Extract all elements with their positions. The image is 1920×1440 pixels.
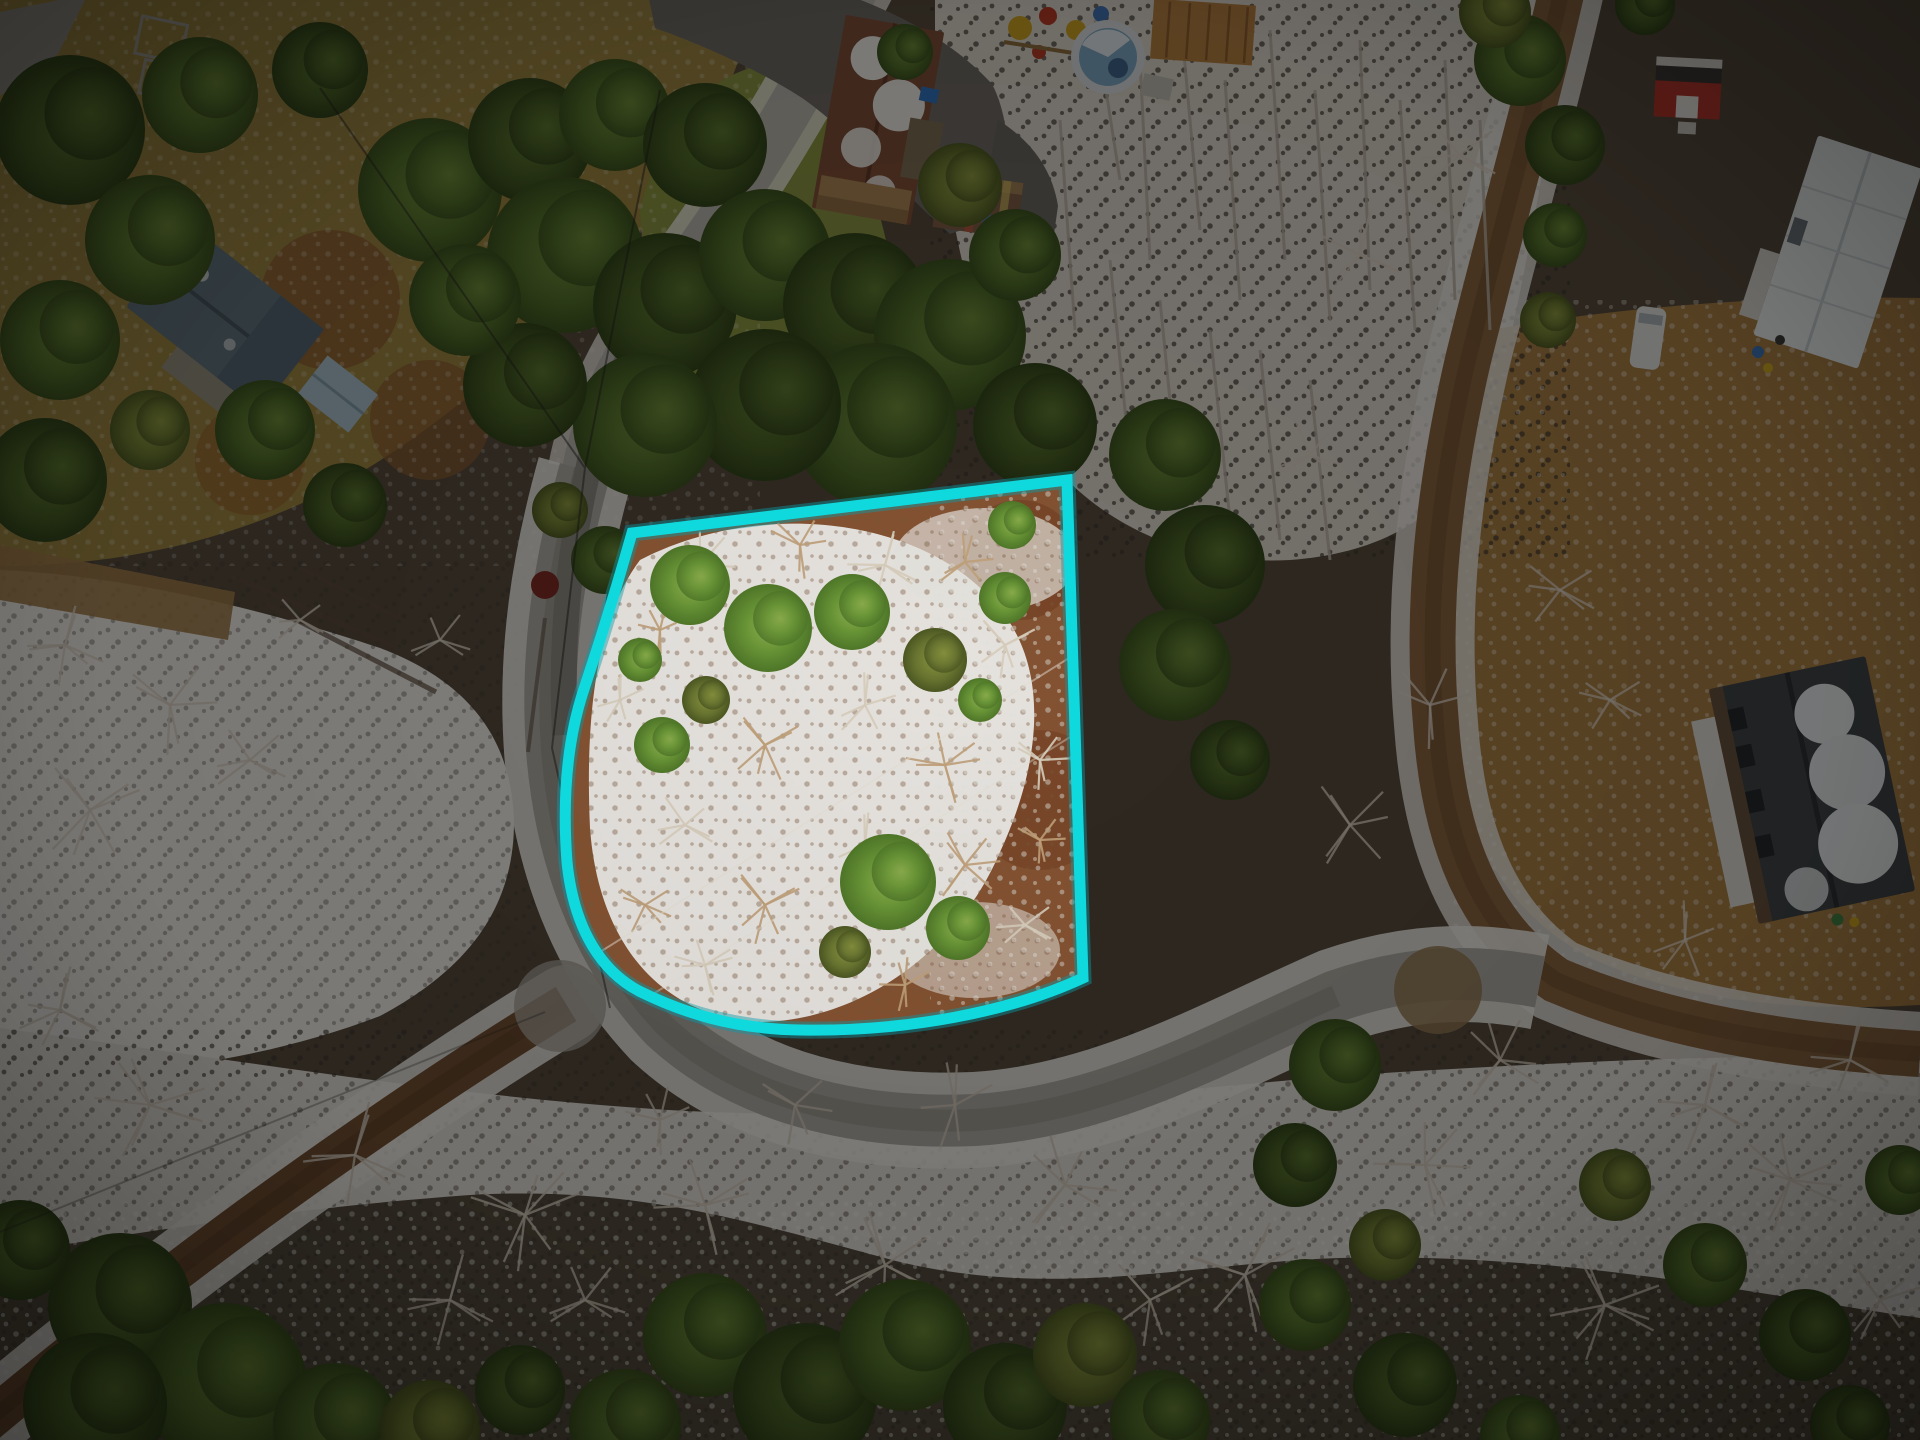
vignette: [0, 0, 1920, 1440]
aerial-lot-photo: [0, 0, 1920, 1440]
aerial-photo-canvas: [0, 0, 1920, 1440]
